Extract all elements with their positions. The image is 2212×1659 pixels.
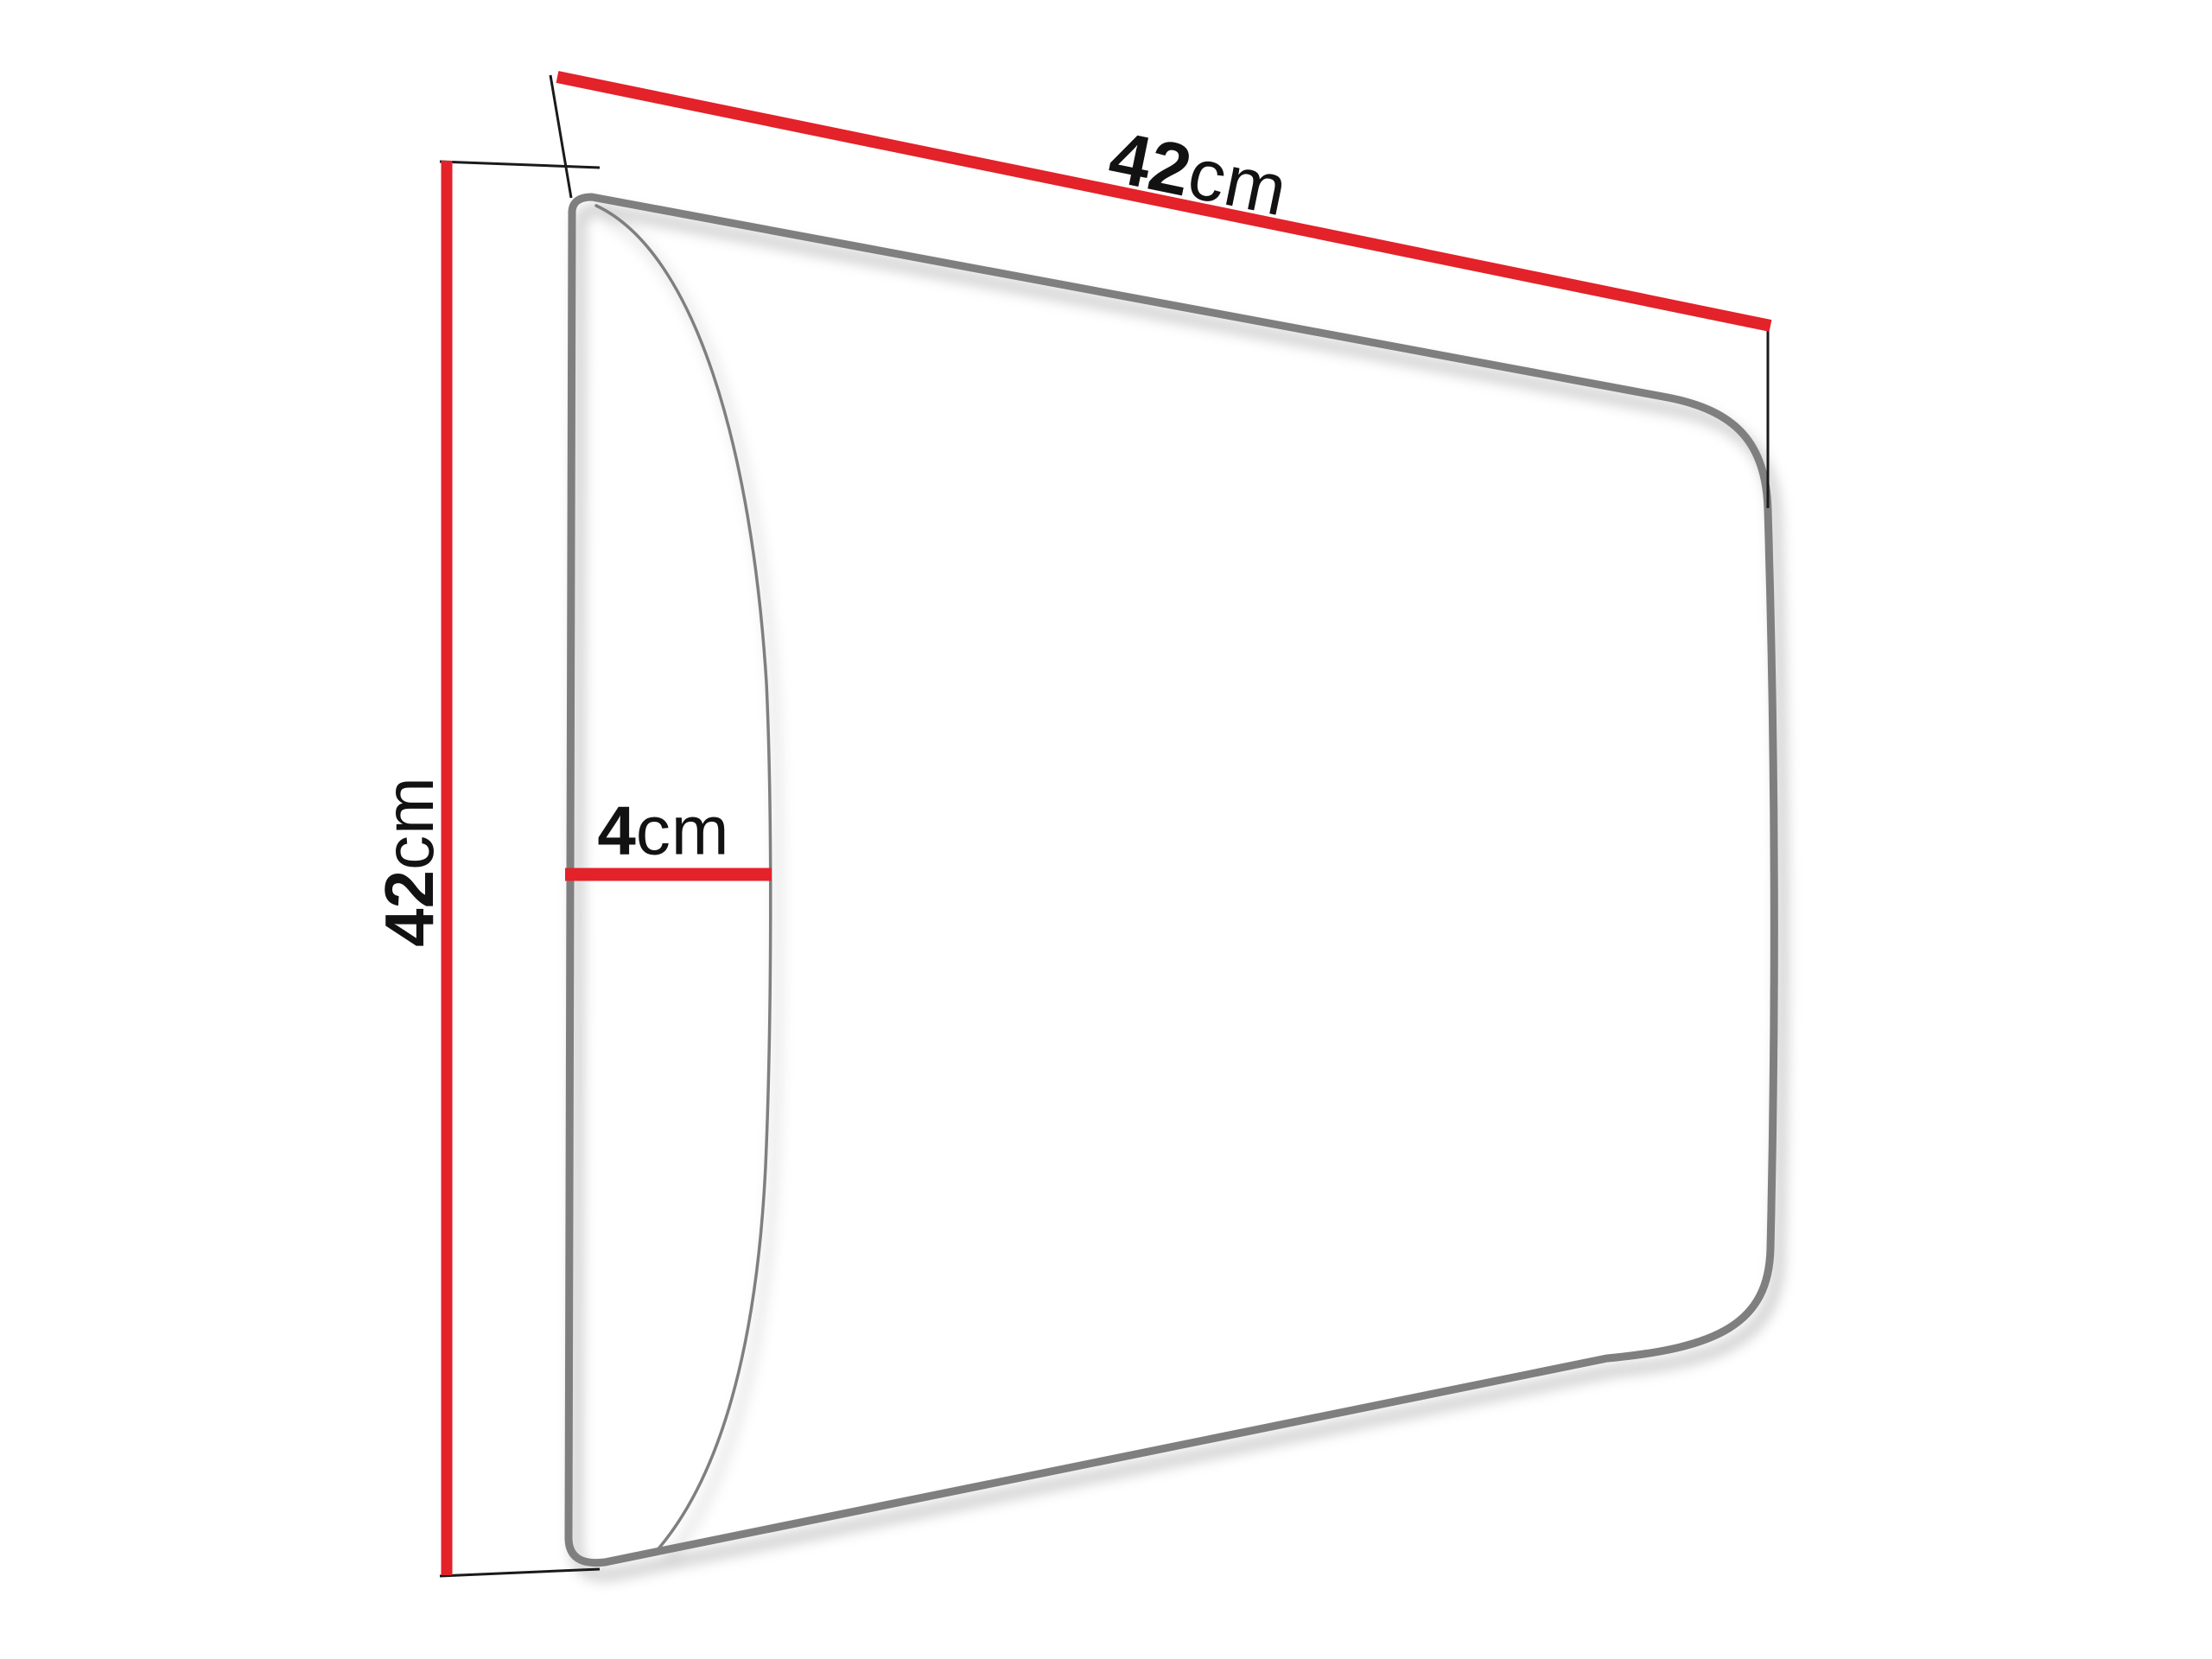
dimension-label-depth: 4cm	[597, 797, 729, 866]
dimension-unit: cm	[636, 792, 730, 869]
diagram-canvas	[0, 0, 2212, 1659]
panel-dimension-diagram: 42cm 42cm 4cm	[0, 0, 2212, 1659]
extension-line-top-left-vertical	[550, 75, 571, 198]
dimension-unit: cm	[371, 776, 448, 870]
extension-line-bottom-left-horizontal	[440, 1569, 600, 1576]
extension-line-top-left-horizontal	[440, 162, 600, 168]
dimension-value: 42	[371, 870, 448, 947]
dimension-value: 4	[597, 792, 636, 869]
dimension-label-height: 42cm	[375, 776, 444, 947]
